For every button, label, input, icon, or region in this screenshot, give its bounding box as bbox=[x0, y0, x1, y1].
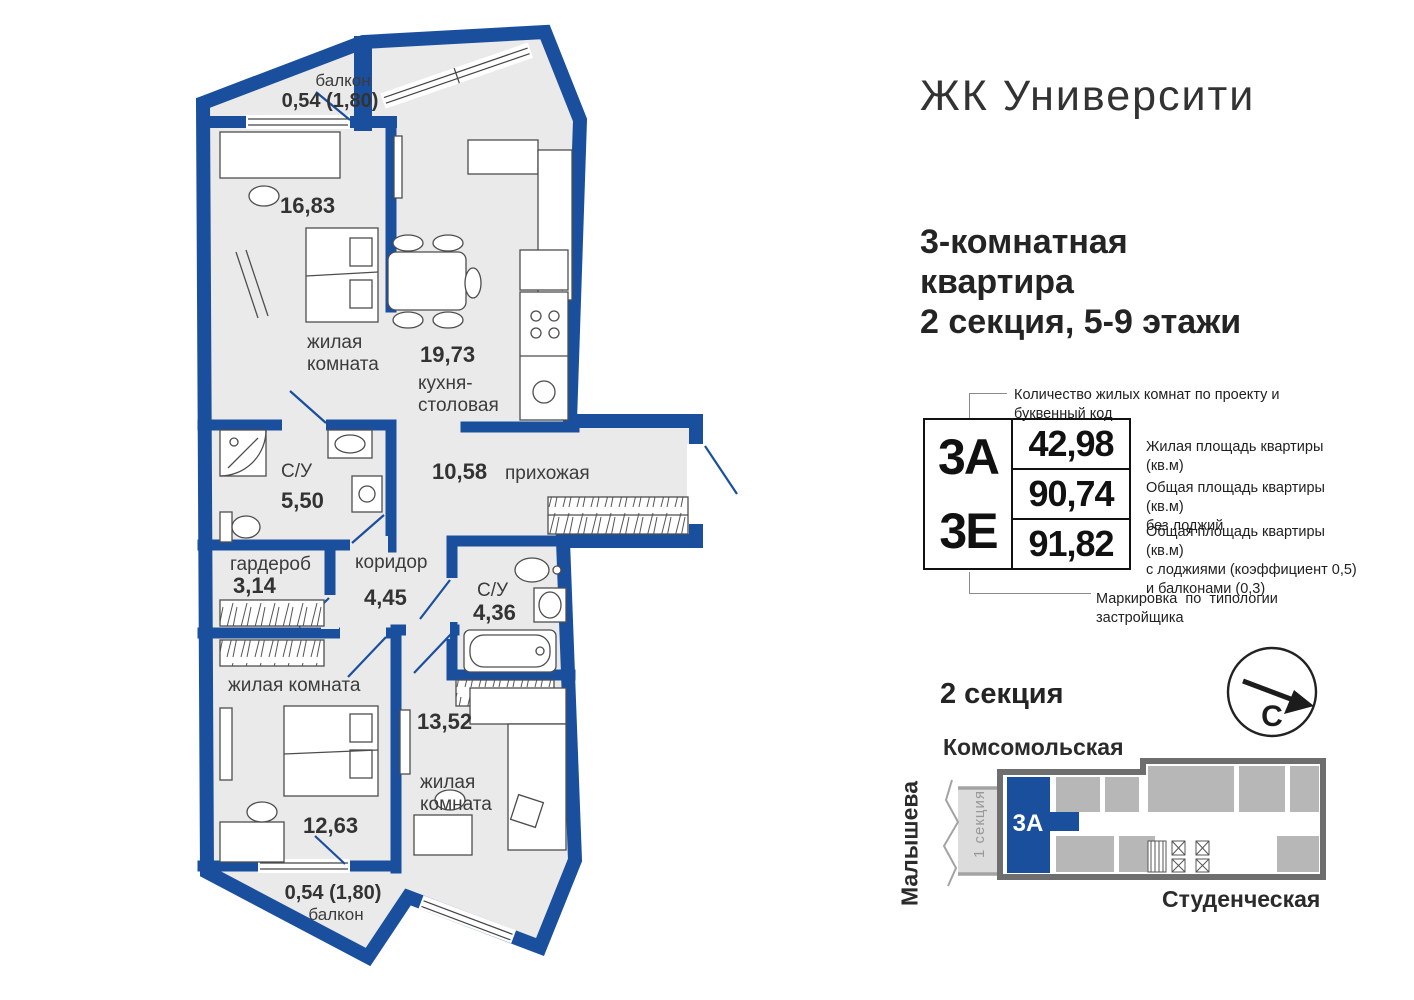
room1-name-l2: комната bbox=[307, 354, 379, 375]
wardrobe-area: 3,14 bbox=[233, 573, 277, 598]
stairs-icon bbox=[1148, 841, 1166, 872]
corridor-area: 4,45 bbox=[364, 585, 407, 610]
note-living-area: Жилая площадь квартиры (кв.м) bbox=[1146, 438, 1356, 476]
connector-top-vertical bbox=[969, 393, 970, 418]
room1-area: 16,83 bbox=[280, 193, 335, 218]
project-title: ЖК Университи bbox=[920, 72, 1255, 121]
spec-table: 3А 3Е 42,98 90,74 91,82 bbox=[923, 418, 1131, 570]
section1-label: 1 секция bbox=[971, 790, 988, 858]
bath2-area: 4,36 bbox=[473, 600, 516, 625]
room1-name-l1: жилая bbox=[307, 332, 362, 353]
spec-values: 42,98 90,74 91,82 bbox=[1013, 420, 1129, 568]
balcony-top-area: 0,54 (1,80) bbox=[282, 90, 379, 112]
bath1-area: 5,50 bbox=[281, 488, 324, 513]
connector-bottom-horizontal bbox=[969, 593, 1091, 594]
balcony-bottom-area: 0,54 (1,80) bbox=[285, 882, 382, 904]
compass-arrow bbox=[1243, 681, 1296, 701]
spec-code-bottom: 3Е bbox=[939, 506, 996, 556]
hall-name: прихожая bbox=[505, 463, 590, 484]
spec-codes: 3А 3Е bbox=[925, 420, 1013, 568]
kitchen-name-l2: столовая bbox=[418, 395, 499, 416]
apartment-summary: 3-комнатная квартира 2 секция, 5-9 этажи bbox=[920, 222, 1241, 342]
connector-bottom-vertical bbox=[969, 572, 970, 594]
compass: С bbox=[1222, 640, 1326, 744]
kitchen-area: 19,73 bbox=[420, 342, 475, 367]
room2-area: 12,63 bbox=[303, 813, 358, 838]
compass-arrowhead bbox=[1284, 690, 1314, 714]
kitchen-name-l1: кухня- bbox=[418, 373, 473, 394]
unit-3a-label: 3А bbox=[1013, 810, 1044, 837]
balcony-top-name: балкон bbox=[315, 71, 370, 90]
room2-name: жилая комната bbox=[228, 675, 361, 696]
section-heading: 2 секция bbox=[940, 678, 1064, 711]
room3-name-l1: жилая bbox=[420, 772, 475, 793]
spec-total-area-with-balconies: 91,82 bbox=[1013, 518, 1129, 568]
entry-door-gap bbox=[687, 444, 707, 524]
room3-name-l2: комната bbox=[420, 794, 492, 815]
apartment-rooms: 3-комнатная bbox=[920, 222, 1241, 262]
hall-area: 10,58 bbox=[432, 459, 487, 484]
bath2-name: С/У bbox=[477, 580, 509, 601]
corridor-name: коридор bbox=[355, 552, 428, 573]
apartment-type: квартира bbox=[920, 262, 1241, 302]
note-marking: Маркировка по типологии застройщика bbox=[1096, 590, 1346, 628]
street-studencheskaya: Студенческая bbox=[1162, 886, 1320, 913]
apartment-section-floors: 2 секция, 5-9 этажи bbox=[920, 302, 1241, 342]
floor-plan: балкон 0,54 (1,80) 16,83 жилая комната 1… bbox=[0, 0, 800, 1000]
balcony-bottom-name: балкон bbox=[308, 905, 363, 924]
bath1-name: С/У bbox=[281, 461, 313, 482]
spec-living-area: 42,98 bbox=[1013, 420, 1129, 468]
room3-area: 13,52 bbox=[417, 709, 472, 734]
note-total-area-balconies: Общая площадь квартиры (кв.м) с лоджиями… bbox=[1146, 523, 1366, 599]
spec-code-top: 3А bbox=[938, 432, 998, 482]
connector-top-horizontal bbox=[969, 393, 1007, 394]
wardrobe-name: гардероб bbox=[230, 554, 311, 575]
spec-total-area: 90,74 bbox=[1013, 468, 1129, 518]
compass-letter: С bbox=[1261, 700, 1283, 733]
street-malysheva: Малышева bbox=[897, 764, 924, 924]
